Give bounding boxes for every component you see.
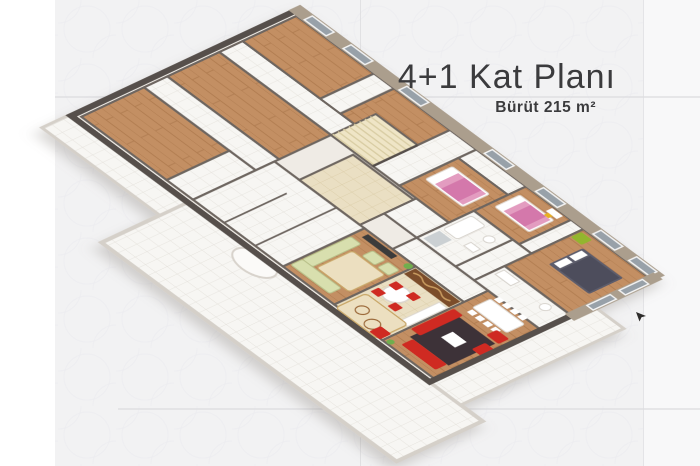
title-block: 4+1 Kat Planı Bürüt 215 m² — [398, 60, 616, 117]
page-title: 4+1 Kat Planı — [398, 60, 616, 96]
page: 4+1 Kat Planı Bürüt 215 m² — [0, 0, 700, 466]
area-label: Bürüt 215 m² — [398, 99, 616, 117]
